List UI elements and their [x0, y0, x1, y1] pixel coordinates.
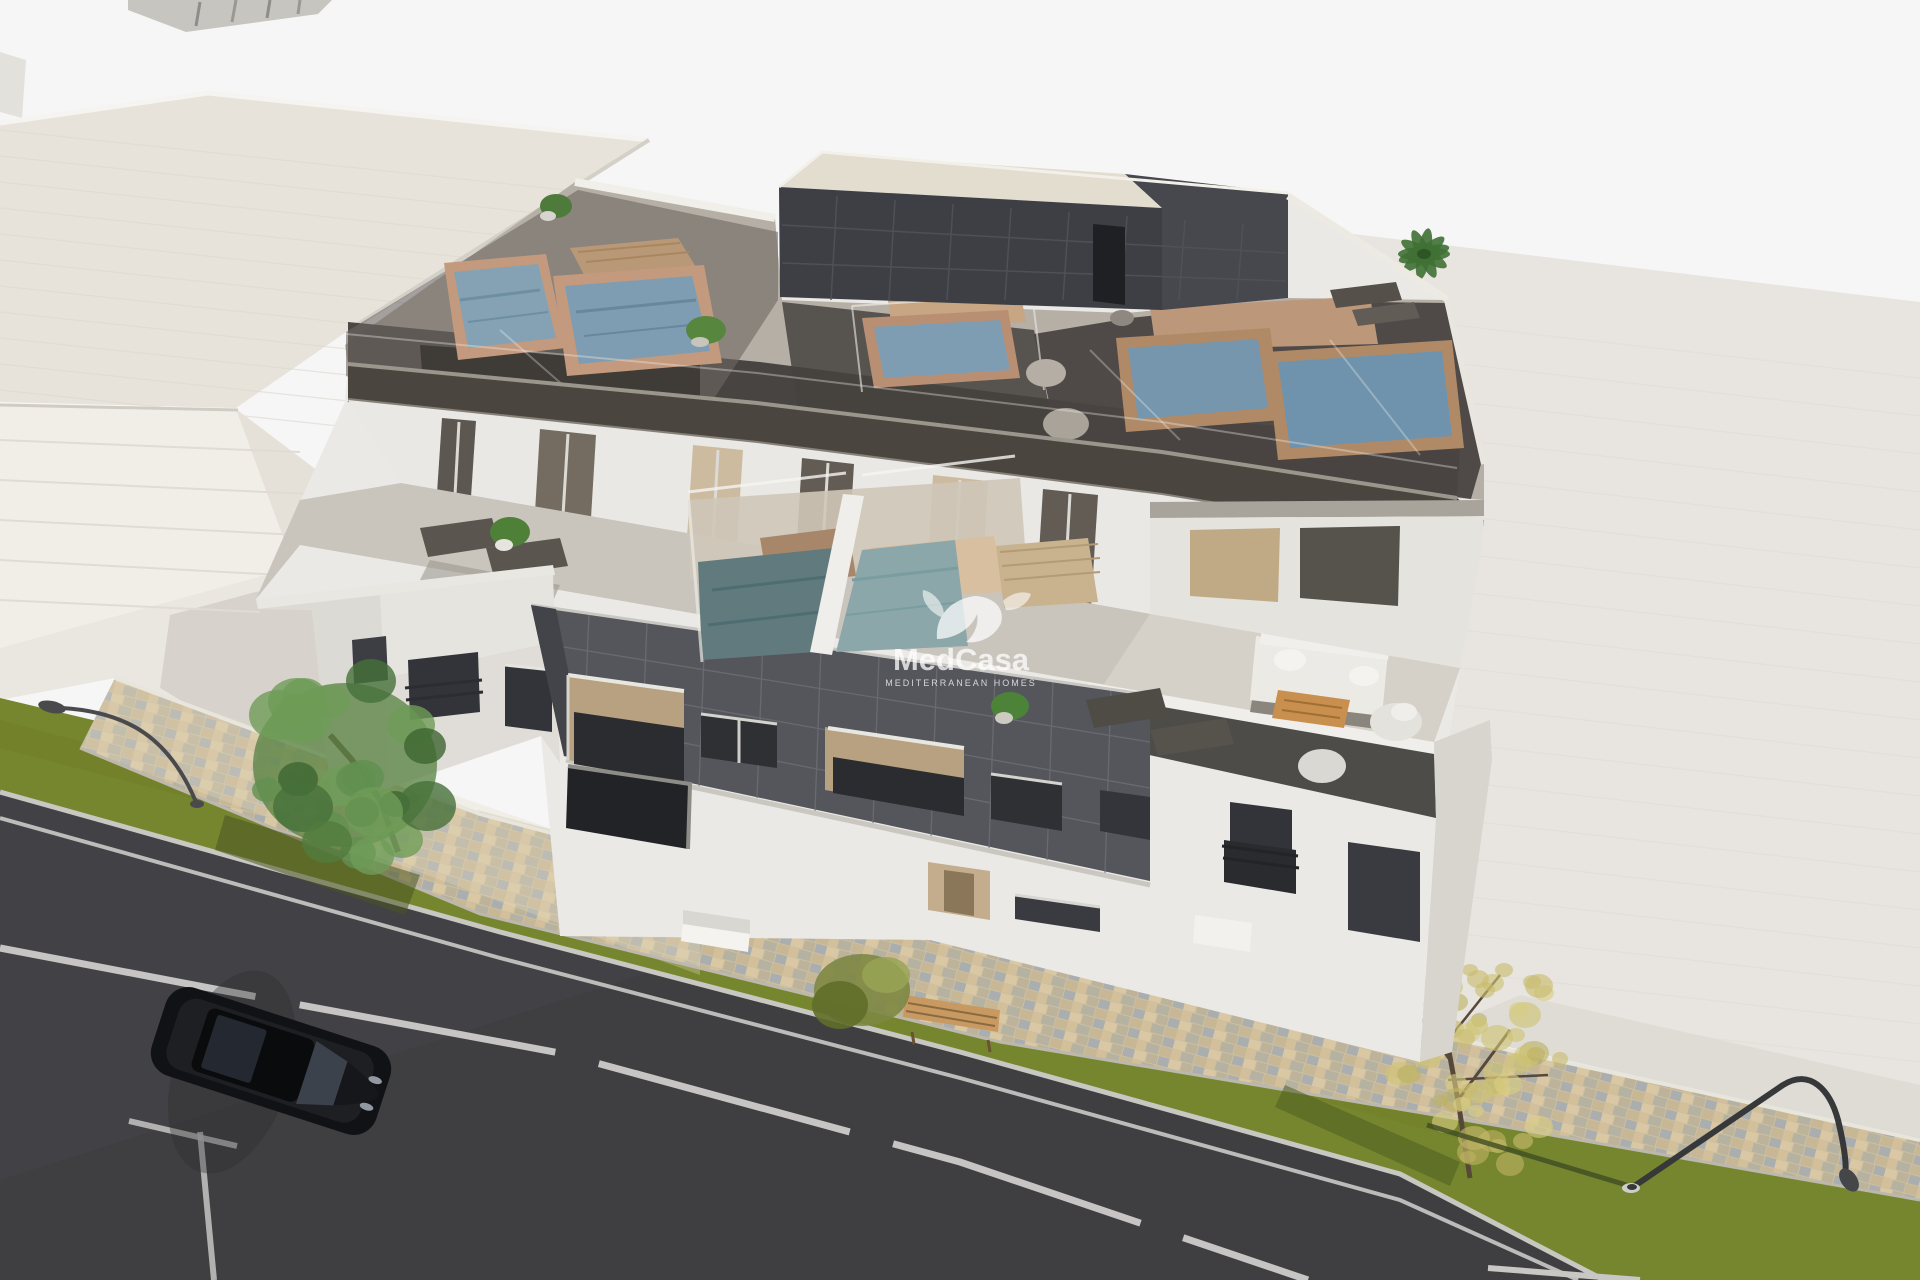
svg-text:MEDITERRANEAN HOMES: MEDITERRANEAN HOMES: [885, 678, 1037, 688]
svg-text:MedCasa: MedCasa: [893, 642, 1030, 677]
